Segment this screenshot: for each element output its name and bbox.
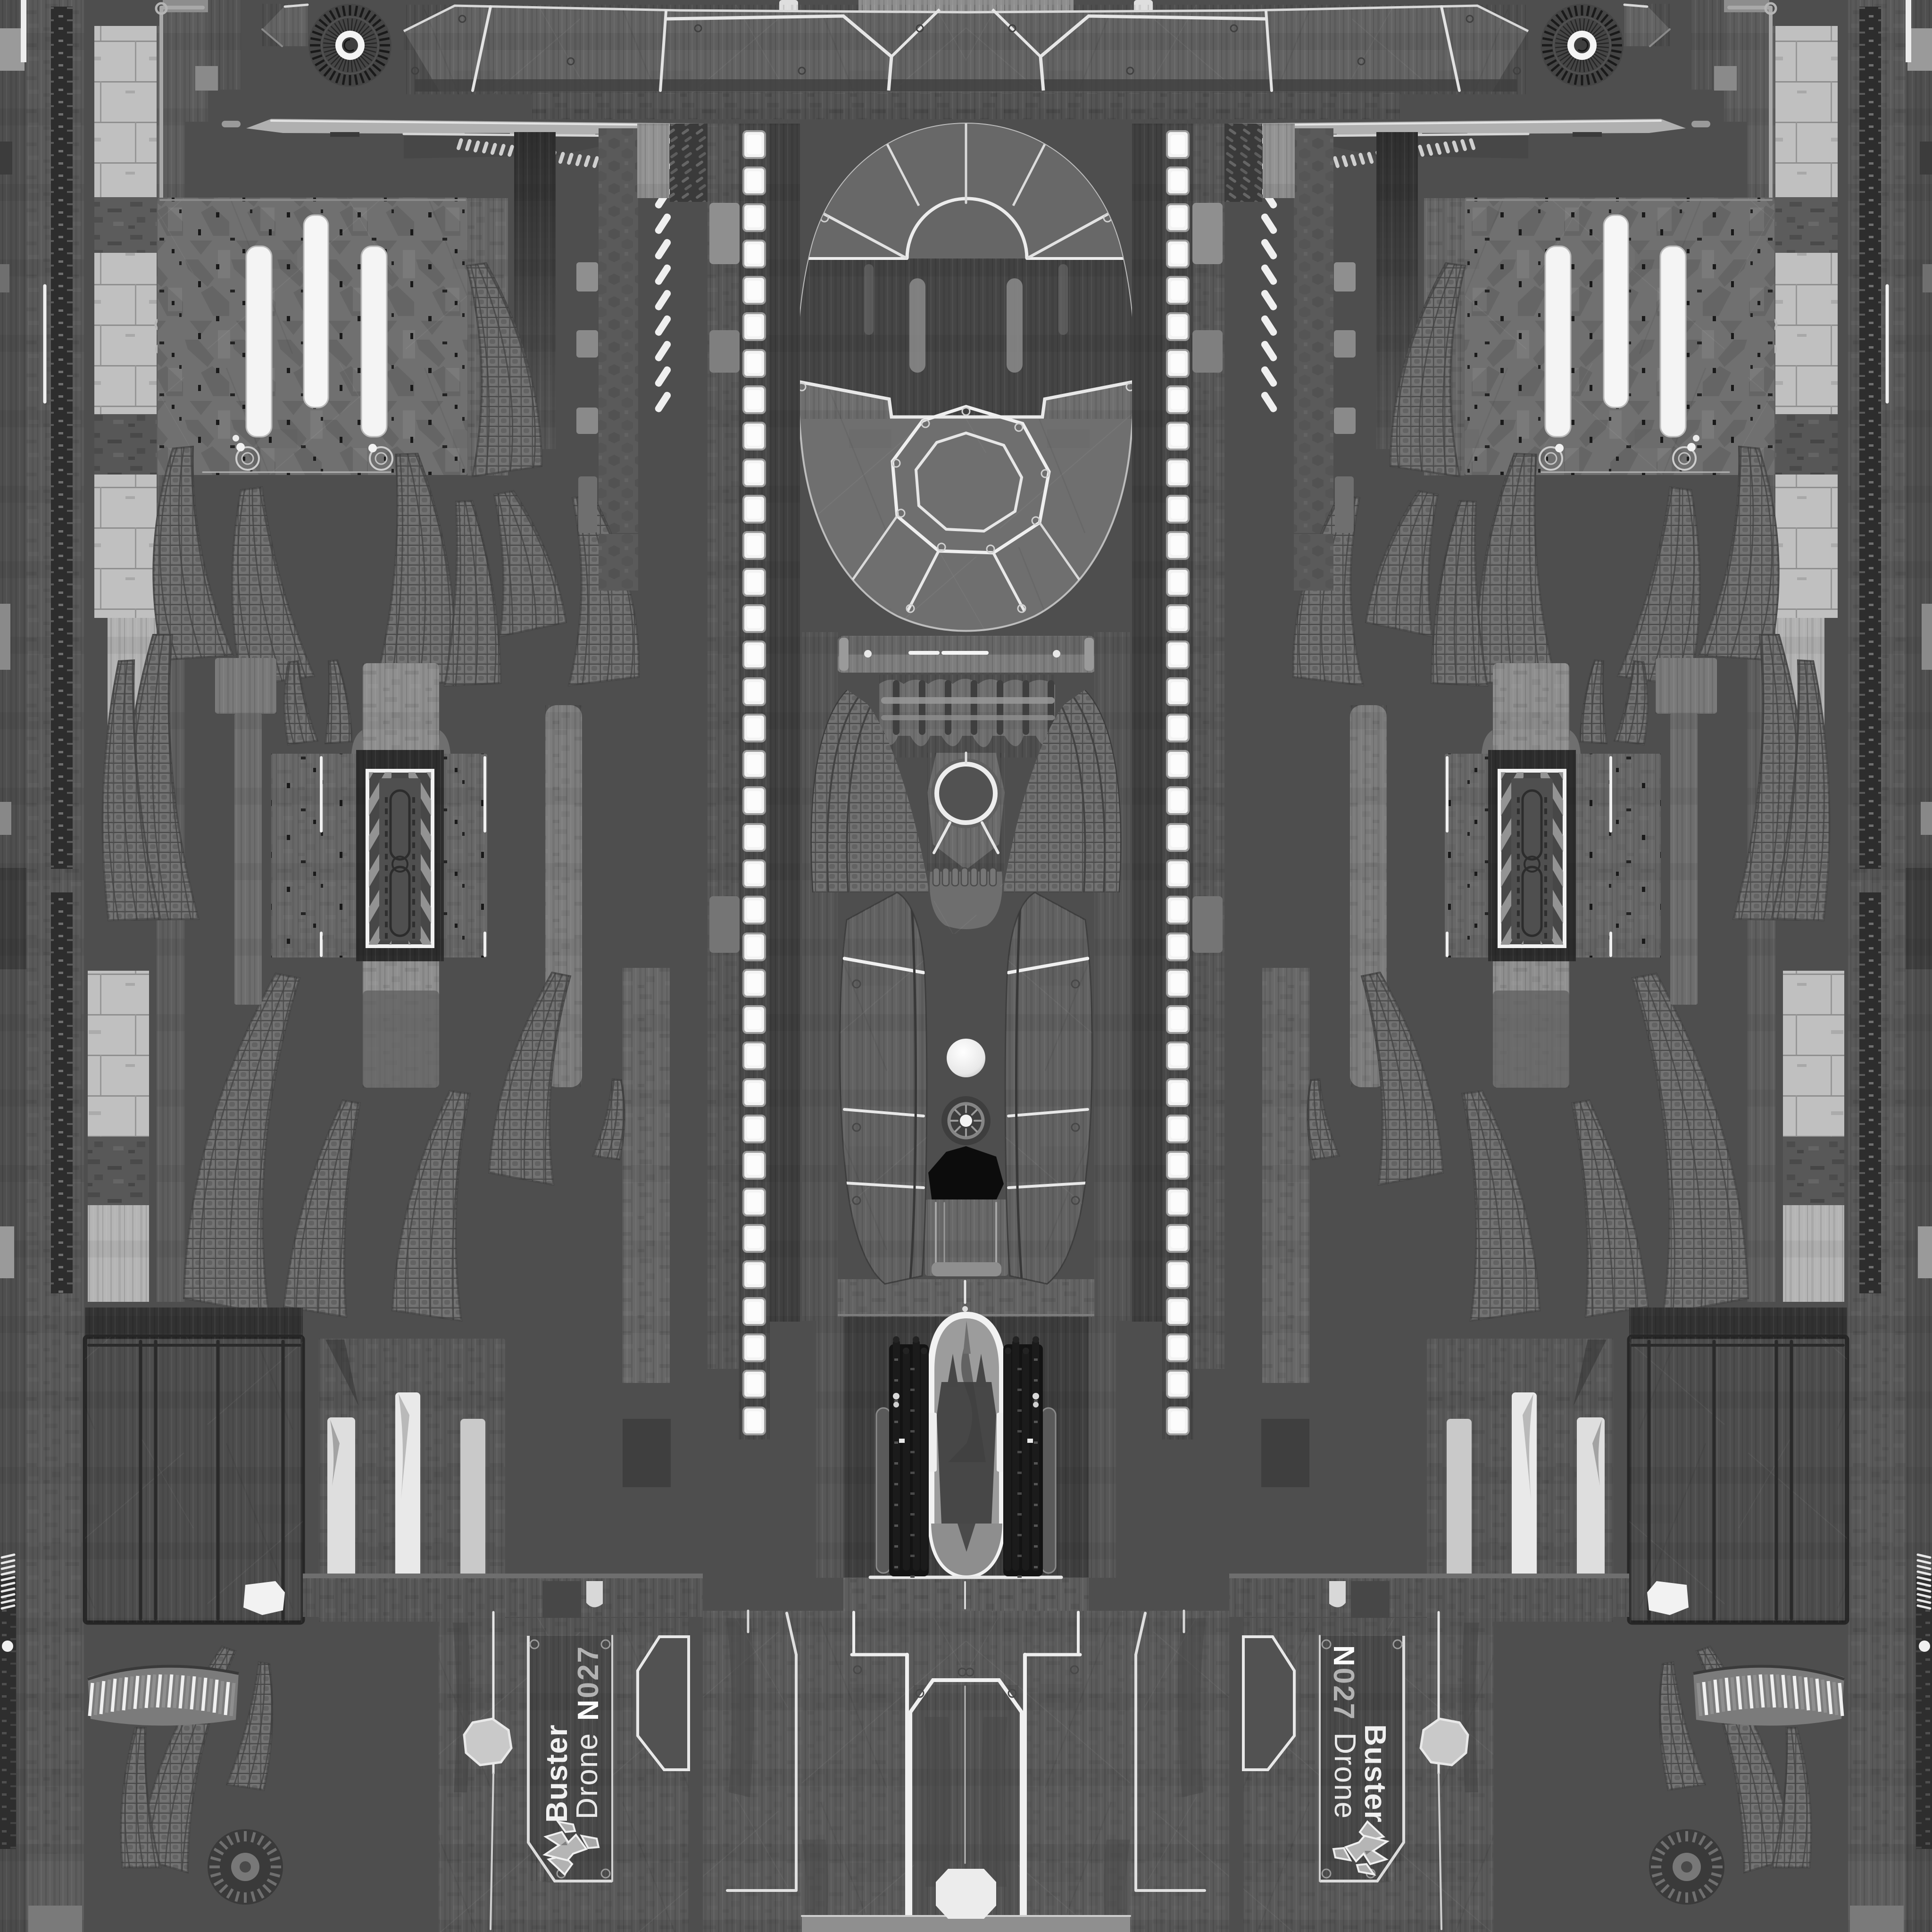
svg-text:Buster: Buster — [1358, 1724, 1392, 1823]
svg-text:Buster: Buster — [540, 1724, 574, 1823]
svg-text:Drone: Drone — [570, 1732, 604, 1819]
svg-text:N027: N027 — [1327, 1645, 1360, 1721]
svg-text:Drone: Drone — [1328, 1732, 1362, 1819]
svg-text:N027: N027 — [572, 1645, 605, 1721]
